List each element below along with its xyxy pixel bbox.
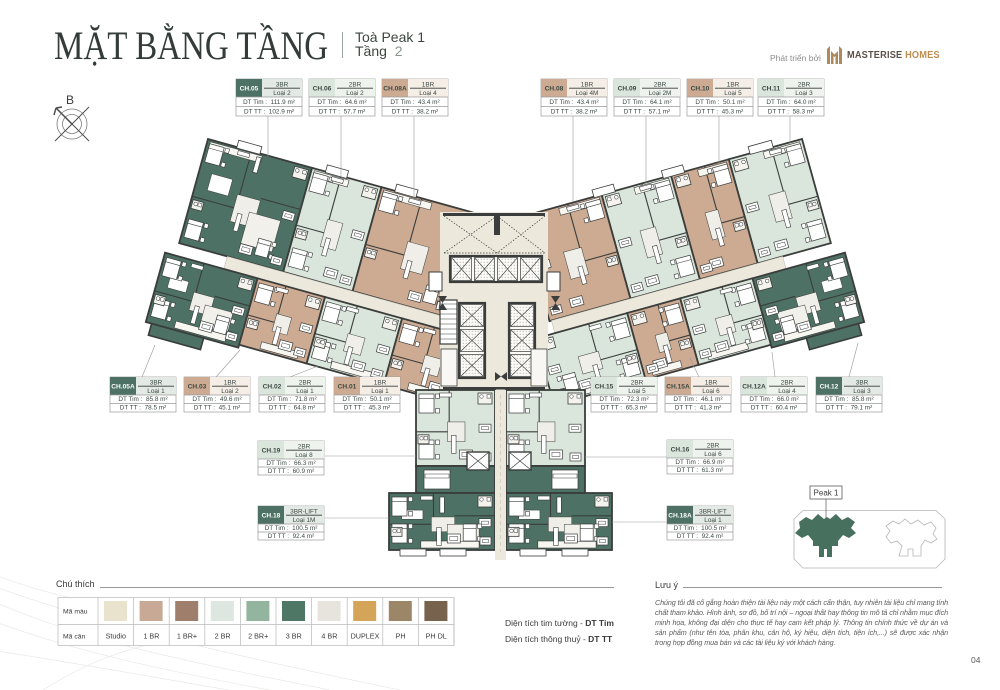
- svg-text:DT Tim : 64.0 m²: DT Tim : 64.0 m²: [766, 99, 815, 106]
- svg-text:DUPLEX: DUPLEX: [351, 632, 380, 641]
- svg-text:DT Tim : 64.6 m²: DT Tim : 64.6 m²: [317, 99, 366, 106]
- svg-text:DT Tim : 72.3 m²: DT Tim : 72.3 m²: [599, 396, 648, 403]
- svg-text:2 BR: 2 BR: [215, 632, 231, 641]
- svg-text:CH.18: CH.18: [262, 512, 281, 519]
- svg-text:1BR: 1BR: [705, 379, 718, 386]
- svg-text:DT Tim : 49.6 m²: DT Tim : 49.6 m²: [192, 396, 241, 403]
- svg-text:2BR: 2BR: [781, 379, 794, 386]
- svg-text:PH DL: PH DL: [426, 632, 447, 641]
- svg-text:2BR: 2BR: [299, 379, 312, 386]
- svg-text:Loại 2M: Loại 2M: [649, 90, 672, 97]
- svg-text:DT TT : 92.4 m²: DT TT : 92.4 m²: [677, 533, 724, 540]
- svg-text:DT Tim : 100.5 m²: DT Tim : 100.5 m²: [265, 525, 318, 532]
- svg-text:CH.01: CH.01: [338, 383, 357, 390]
- svg-text:DT TT : 61.3 m²: DT TT : 61.3 m²: [677, 467, 724, 474]
- svg-text:Loại 3: Loại 3: [853, 388, 871, 395]
- svg-text:Loại 6: Loại 6: [704, 451, 722, 458]
- svg-text:CH.15A: CH.15A: [666, 383, 690, 390]
- svg-text:Peak 1: Peak 1: [814, 489, 839, 498]
- svg-text:CH.06: CH.06: [313, 85, 332, 92]
- svg-text:DT Tim : 43.4 m²: DT Tim : 43.4 m²: [549, 99, 598, 106]
- svg-text:DT TT : 78.5 m²: DT TT : 78.5 m²: [120, 405, 167, 412]
- svg-text:CH.12: CH.12: [820, 383, 839, 390]
- svg-text:DT TT : 60.4 m²: DT TT : 60.4 m²: [751, 405, 798, 412]
- svg-text:DT Tim : 66.9 m²: DT Tim : 66.9 m²: [675, 459, 724, 466]
- svg-text:CH.19: CH.19: [262, 447, 281, 454]
- svg-text:DT Tim : 111.9 m²: DT Tim : 111.9 m²: [243, 99, 295, 106]
- svg-text:CH.09: CH.09: [618, 85, 637, 92]
- svg-text:DT Tim : 50.1 m²: DT Tim : 50.1 m²: [695, 99, 744, 106]
- svg-text:DT TT : 102.9 m²: DT TT : 102.9 m²: [244, 108, 294, 115]
- svg-text:Loại 3: Loại 3: [795, 90, 813, 97]
- svg-text:Loại 5: Loại 5: [724, 90, 742, 97]
- svg-text:2BR: 2BR: [298, 443, 311, 450]
- svg-text:2BR: 2BR: [707, 442, 720, 449]
- svg-text:CH.03: CH.03: [188, 383, 207, 390]
- svg-text:DT TT : 60.9 m²: DT TT : 60.9 m²: [268, 468, 315, 475]
- svg-text:1BR: 1BR: [224, 379, 237, 386]
- svg-text:Loại 1: Loại 1: [371, 388, 389, 395]
- svg-text:2BR: 2BR: [654, 81, 667, 88]
- svg-text:DT Tim : 46.1 m²: DT Tim : 46.1 m²: [673, 396, 722, 403]
- svg-text:CH.12A: CH.12A: [742, 383, 766, 390]
- svg-text:2BR: 2BR: [349, 81, 362, 88]
- svg-text:Loại 1: Loại 1: [147, 388, 165, 395]
- svg-text:3BR: 3BR: [150, 379, 163, 386]
- svg-text:Loại 2: Loại 2: [273, 90, 291, 97]
- svg-text:DT TT : 38.2 m²: DT TT : 38.2 m²: [551, 108, 598, 115]
- svg-text:DT Tim : 85.8 m²: DT Tim : 85.8 m²: [118, 396, 167, 403]
- svg-text:CH.11: CH.11: [762, 85, 781, 92]
- svg-text:2BR: 2BR: [631, 379, 644, 386]
- svg-text:1BR: 1BR: [374, 379, 387, 386]
- svg-text:CH.10: CH.10: [691, 85, 710, 92]
- svg-text:CH.05A: CH.05A: [111, 383, 135, 390]
- svg-text:2BR: 2BR: [798, 81, 811, 88]
- svg-text:DT Tim : 64.1 m²: DT Tim : 64.1 m²: [622, 99, 671, 106]
- svg-text:Loại 1M: Loại 1M: [293, 517, 316, 524]
- svg-text:DT TT : 58.3 m²: DT TT : 58.3 m²: [768, 108, 815, 115]
- svg-text:DT TT : 57.7 m²: DT TT : 57.7 m²: [319, 108, 366, 115]
- svg-text:DT TT : 45.1 m²: DT TT : 45.1 m²: [194, 405, 241, 412]
- svg-text:DT TT : 41.3 m²: DT TT : 41.3 m²: [675, 405, 722, 412]
- svg-text:3BR-LIFT: 3BR-LIFT: [699, 508, 727, 515]
- svg-text:Loại 2: Loại 2: [221, 388, 239, 395]
- svg-text:DT TT : 65.3 m²: DT TT : 65.3 m²: [601, 405, 648, 412]
- svg-text:Loại 4: Loại 4: [419, 90, 437, 97]
- svg-text:1BR: 1BR: [581, 81, 594, 88]
- svg-text:1 BR: 1 BR: [143, 632, 159, 641]
- svg-text:DT TT : 45.3 m²: DT TT : 45.3 m²: [344, 405, 391, 412]
- svg-text:3BR-LIFT: 3BR-LIFT: [290, 508, 318, 515]
- svg-text:DT TT : 38.2 m²: DT TT : 38.2 m²: [392, 108, 439, 115]
- svg-text:1 BR+: 1 BR+: [177, 632, 197, 641]
- svg-text:DT Tim : 85.8 m²: DT Tim : 85.8 m²: [824, 396, 873, 403]
- svg-text:DT Tim : 43.4 m²: DT Tim : 43.4 m²: [390, 99, 439, 106]
- svg-text:Loại 8: Loại 8: [295, 452, 313, 459]
- svg-text:4 BR: 4 BR: [321, 632, 337, 641]
- svg-text:CH.05: CH.05: [240, 85, 259, 92]
- svg-text:DT TT : 79.1 m²: DT TT : 79.1 m²: [826, 405, 873, 412]
- svg-text:Loại 6: Loại 6: [702, 388, 720, 395]
- svg-text:Studio: Studio: [106, 632, 126, 641]
- svg-text:3 BR: 3 BR: [286, 632, 302, 641]
- svg-text:CH.18A: CH.18A: [668, 512, 692, 519]
- svg-text:Loại 4: Loại 4: [778, 388, 796, 395]
- svg-text:Loại 1: Loại 1: [704, 517, 722, 524]
- svg-text:1BR: 1BR: [422, 81, 435, 88]
- svg-text:CH.15: CH.15: [595, 383, 614, 390]
- svg-text:DT Tim : 66.0 m²: DT Tim : 66.0 m²: [749, 396, 798, 403]
- svg-text:DT Tim : 66.3 m²: DT Tim : 66.3 m²: [266, 460, 315, 467]
- svg-text:3BR: 3BR: [276, 81, 289, 88]
- svg-text:CH.08: CH.08: [545, 85, 564, 92]
- svg-text:DT TT : 57.1 m²: DT TT : 57.1 m²: [624, 108, 671, 115]
- svg-text:DT TT : 64.8 m²: DT TT : 64.8 m²: [269, 405, 316, 412]
- svg-text:DT Tim : 71.8 m²: DT Tim : 71.8 m²: [267, 396, 316, 403]
- svg-text:DT Tim : 50.1 m²: DT Tim : 50.1 m²: [342, 396, 391, 403]
- svg-text:Mã màu: Mã màu: [63, 609, 88, 616]
- svg-text:DT TT : 45.3 m²: DT TT : 45.3 m²: [697, 108, 744, 115]
- svg-text:Loại 4M: Loại 4M: [576, 90, 599, 97]
- svg-text:PH: PH: [396, 632, 406, 641]
- svg-text:DT TT : 92.4 m²: DT TT : 92.4 m²: [268, 533, 315, 540]
- svg-text:CH.16: CH.16: [671, 446, 690, 453]
- svg-text:CH.08A: CH.08A: [383, 85, 407, 92]
- svg-text:Mã căn: Mã căn: [63, 634, 86, 641]
- svg-text:Loại 5: Loại 5: [628, 388, 646, 395]
- svg-text:B: B: [66, 93, 74, 107]
- svg-text:CH.02: CH.02: [263, 383, 282, 390]
- svg-text:2 BR+: 2 BR+: [248, 632, 268, 641]
- svg-text:Loại 1: Loại 1: [296, 388, 314, 395]
- svg-text:DT Tim : 100.5 m²: DT Tim : 100.5 m²: [674, 525, 727, 532]
- svg-text:Loại 2: Loại 2: [346, 90, 364, 97]
- svg-text:1BR: 1BR: [727, 81, 740, 88]
- svg-text:3BR: 3BR: [856, 379, 869, 386]
